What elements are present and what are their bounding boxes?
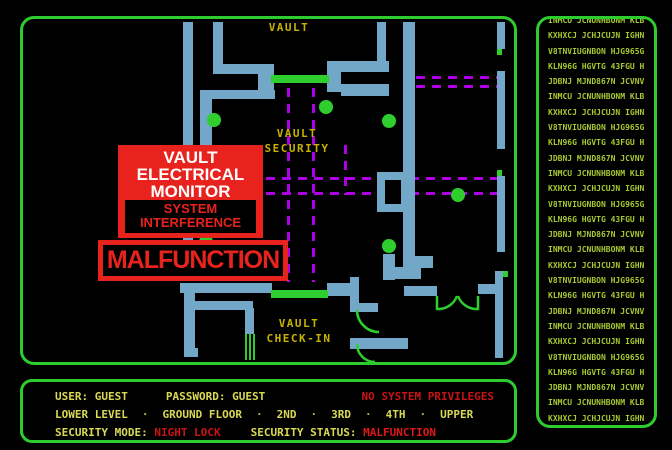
map-wall: [497, 176, 505, 252]
door-marker: [249, 334, 251, 360]
malfunction-alert: MALFUNCTION: [98, 240, 288, 281]
user-label: USER:: [55, 388, 88, 406]
user-value: GUEST: [95, 388, 128, 406]
terminal-line: KLN96G HGVTG 43FGU H: [548, 288, 654, 303]
terminal-line: KLN96G HGVTG 43FGU H: [548, 135, 654, 150]
door-swing-arc: [437, 296, 457, 309]
terminal-line: INMCU JCNUNHBONM KLB: [548, 89, 654, 104]
floor-separator-dot: ·: [419, 406, 426, 424]
room-label: VAULT: [279, 317, 320, 330]
terminal-line: V8TNVIUGNBON HJG965G: [548, 350, 654, 365]
privileges-warning: NO SYSTEM PRIVILEGES: [362, 388, 494, 406]
floor-separator-dot: ·: [256, 406, 263, 424]
security-status-value: MALFUNCTION: [363, 424, 436, 442]
terminal-lines: INMCU JCNUNHBONM KLBKXHXCJ JCHJCUJN IGHN…: [548, 16, 654, 426]
floor-option[interactable]: GROUND FLOOR: [162, 406, 241, 424]
terminal-line: KLN96G HGVTG 43FGU H: [548, 365, 654, 380]
terminal-line: JDBNJ MJND867N JCVNV: [548, 304, 654, 319]
password-label: PASSWORD:: [166, 388, 226, 406]
door-swing-arc: [458, 296, 478, 309]
terminal-line: INMCU JCNUNHBONM KLB: [548, 395, 654, 410]
map-wall: [184, 348, 198, 357]
map-wall: [327, 283, 351, 296]
map-wall: [350, 277, 359, 305]
terminal-line: KXHXCJ JCHJCUJN IGHN: [548, 258, 654, 273]
terminal-line: JDBNJ MJND867N JCVNV: [548, 74, 654, 89]
floor-option[interactable]: 3RD: [331, 406, 351, 424]
floor-option[interactable]: LOWER LEVEL: [55, 406, 128, 424]
map-wall: [341, 84, 389, 96]
malfunction-alert-text: MALFUNCTION: [107, 246, 279, 275]
alert-title-line: MONITOR: [118, 183, 263, 200]
door-marker: [253, 334, 255, 360]
alert-title-line: VAULT: [118, 149, 263, 166]
system-interference-alert: SYSTEM INTERFERENCE: [125, 200, 256, 233]
door-marker: [497, 49, 502, 55]
floor-selector: LOWER LEVEL·GROUND FLOOR·2ND·3RD·4TH·UPP…: [55, 406, 494, 424]
sensor-dot: [207, 113, 221, 127]
terminal-line: INMCU JCNUNHBONM KLB: [548, 166, 654, 181]
terminal-line: KXHXCJ JCHJCUJN IGHN: [548, 411, 654, 426]
map-wall: [213, 22, 223, 68]
security-status-label: SECURITY STATUS:: [251, 424, 357, 442]
terminal-line: INMCU JCNUNHBONM KLB: [548, 16, 654, 28]
map-wall: [184, 290, 195, 357]
user-row: USER: GUEST PASSWORD: GUEST NO SYSTEM PR…: [55, 388, 494, 406]
door-marker: [271, 75, 329, 83]
door-marker: [503, 271, 508, 277]
floor-separator-dot: ·: [142, 406, 149, 424]
door-marker: [497, 170, 502, 176]
map-wall: [404, 286, 437, 296]
room-label: CHECK-IN: [267, 332, 332, 345]
map-wall: [377, 22, 386, 72]
terminal-line: KXHXCJ JCHJCUJN IGHN: [548, 334, 654, 349]
security-console-screen: VAULTVAULTSECURITYVAULTCHECK-IN VAULT EL…: [0, 0, 672, 450]
terminal-line: KLN96G HGVTG 43FGU H: [548, 59, 654, 74]
terminal-line: INMCU JCNUNHBONM KLB: [548, 319, 654, 334]
interference-line: INTERFERENCE: [125, 216, 256, 230]
security-mode-label: SECURITY MODE:: [55, 424, 148, 442]
sensor-dot: [382, 114, 396, 128]
sensor-dot: [319, 100, 333, 114]
map-wall: [403, 22, 415, 268]
terminal-line: JDBNJ MJND867N JCVNV: [548, 380, 654, 395]
terminal-line: KXHXCJ JCHJCUJN IGHN: [548, 181, 654, 196]
floor-separator-dot: ·: [365, 406, 372, 424]
room-label: VAULT: [277, 127, 318, 140]
floor-option[interactable]: 2ND: [277, 406, 297, 424]
door-marker: [271, 290, 328, 298]
map-wall: [210, 90, 275, 99]
password-value: GUEST: [232, 388, 265, 406]
door-marker: [245, 334, 247, 360]
map-wall: [245, 308, 254, 334]
interference-line: SYSTEM: [125, 202, 256, 216]
map-wall: [350, 338, 408, 349]
floor-separator-dot: ·: [310, 406, 317, 424]
data-terminal: INMCU JCNUNHBONM KLBKXHXCJ JCHJCUJN IGHN…: [536, 16, 657, 428]
map-wall: [497, 71, 505, 149]
terminal-line: KXHXCJ JCHJCUJN IGHN: [548, 28, 654, 43]
terminal-line: JDBNJ MJND867N JCVNV: [548, 151, 654, 166]
map-room-opening: [385, 180, 401, 204]
vault-electrical-monitor-alert: VAULT ELECTRICAL MONITOR SYSTEM INTERFER…: [118, 145, 263, 238]
map-wall: [478, 284, 498, 294]
room-label: VAULT: [269, 21, 310, 34]
terminal-line: V8TNVIUGNBON HJG965G: [548, 197, 654, 212]
map-wall: [327, 61, 341, 92]
map-wall: [383, 254, 395, 280]
terminal-line: V8TNVIUGNBON HJG965G: [548, 273, 654, 288]
floor-map: VAULTVAULTSECURITYVAULTCHECK-IN: [22, 18, 515, 363]
terminal-line: KXHXCJ JCHJCUJN IGHN: [548, 105, 654, 120]
terminal-line: V8TNVIUGNBON HJG965G: [548, 120, 654, 135]
door-swing-arc: [357, 310, 379, 332]
map-wall: [195, 301, 253, 310]
security-row: SECURITY MODE: NIGHT LOCK SECURITY STATU…: [55, 424, 494, 442]
terminal-line: INMCU JCNUNHBONM KLB: [548, 242, 654, 257]
floor-option[interactable]: UPPER: [440, 406, 473, 424]
terminal-line: JDBNJ MJND867N JCVNV: [548, 227, 654, 242]
terminal-line: V8TNVIUGNBON HJG965G: [548, 44, 654, 59]
room-label: SECURITY: [265, 142, 330, 155]
floor-option[interactable]: 4TH: [386, 406, 406, 424]
sensor-dot: [382, 239, 396, 253]
status-bar: USER: GUEST PASSWORD: GUEST NO SYSTEM PR…: [20, 379, 517, 443]
map-wall: [415, 256, 433, 268]
alert-title-line: ELECTRICAL: [118, 166, 263, 183]
security-mode-value: NIGHT LOCK: [154, 424, 220, 442]
map-wall: [395, 267, 421, 279]
sensor-dot: [451, 188, 465, 202]
map-wall: [497, 22, 505, 49]
terminal-line: KLN96G HGVTG 43FGU H: [548, 212, 654, 227]
